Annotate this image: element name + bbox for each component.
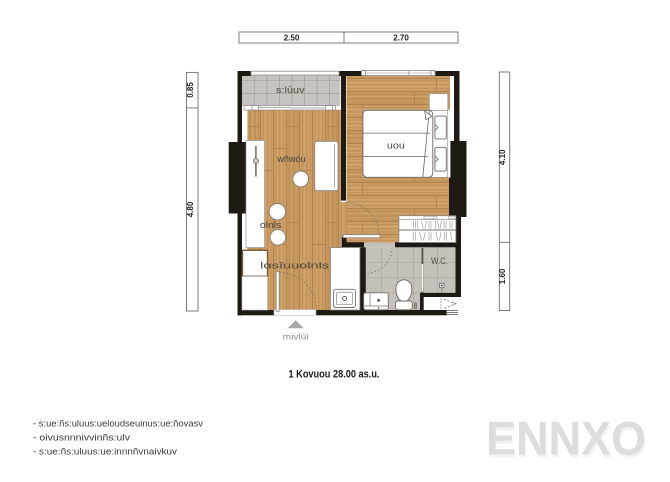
svg-text:wñwóu: wñwóu xyxy=(276,154,305,165)
svg-text:0.85: 0.85 xyxy=(186,82,195,98)
svg-text:- s:ue:ñs:uluus:ue:innnñvnaivk: - s:ue:ñs:uluus:ue:innnñvnaivkuv xyxy=(33,446,177,456)
svg-text:1 Kovuou 28.00 as.u.: 1 Kovuou 28.00 as.u. xyxy=(289,369,380,381)
svg-text:2.50: 2.50 xyxy=(284,34,300,43)
svg-text:- oivusnnnivvinñs:ulv: - oivusnnnivvinñs:ulv xyxy=(33,432,130,442)
svg-text:s:lūuv: s:lūuv xyxy=(276,85,305,96)
svg-text:2.70: 2.70 xyxy=(393,34,409,43)
svg-text:uou: uou xyxy=(387,141,405,152)
svg-text:4.10: 4.10 xyxy=(498,149,507,165)
svg-text:- s:ue:ñs:uluus:ueloudseuinus:: - s:ue:ñs:uluus:ueloudseuinus:ue:ñovasv xyxy=(33,418,203,428)
svg-text:ENNXO: ENNXO xyxy=(486,412,646,465)
svg-text:4.80: 4.80 xyxy=(186,201,195,217)
svg-text:mivlúi: mivlúi xyxy=(283,331,309,341)
svg-text:1.60: 1.60 xyxy=(498,268,507,284)
svg-text:olnls: olnls xyxy=(260,220,282,230)
svg-text:lαsīuuolnls: lαsīuuolnls xyxy=(260,260,329,271)
svg-text:W.C.: W.C. xyxy=(431,256,448,267)
